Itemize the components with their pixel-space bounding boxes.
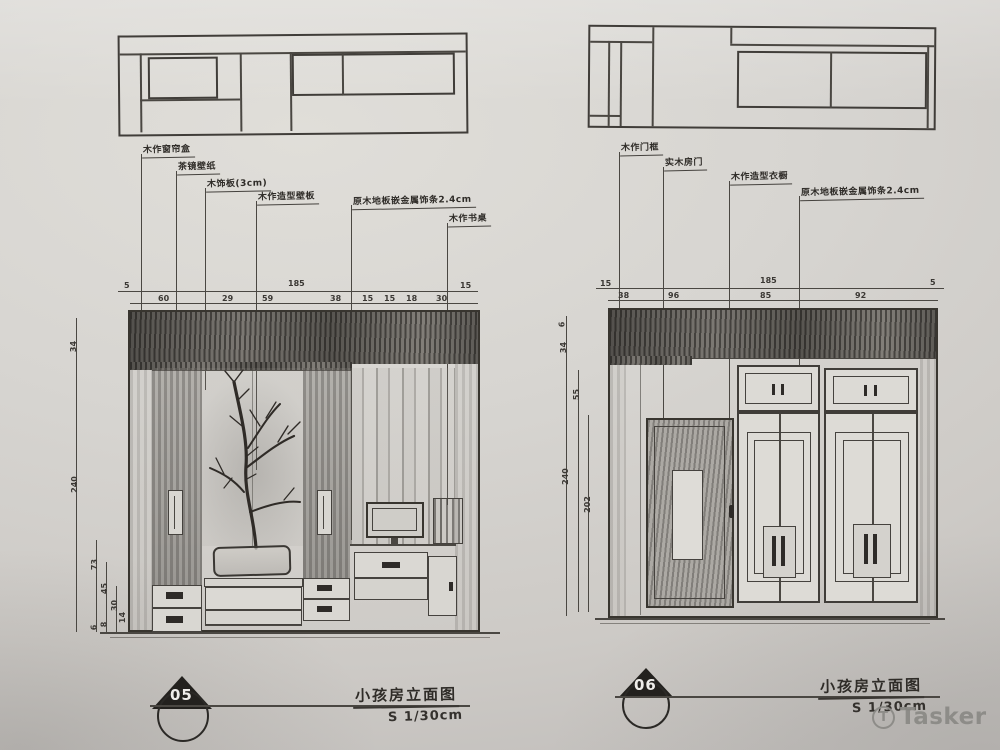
wardrobe-top-cabinet	[824, 368, 918, 412]
dimension-value: 15	[460, 281, 471, 290]
wardrobe-handle	[772, 536, 776, 566]
dimension-value: 34	[69, 341, 78, 352]
dimension-value: 60	[158, 294, 169, 303]
dimension-value: 55	[572, 389, 581, 400]
cabinet-handle	[864, 385, 867, 396]
dimension-line	[130, 303, 478, 304]
pencil-line	[927, 45, 929, 128]
pencil-line	[140, 98, 240, 100]
cabinet-handle	[449, 582, 453, 591]
tasker-watermark: T Tasker	[872, 704, 987, 730]
bed-pillow	[213, 545, 292, 577]
dimension-value: 6	[89, 625, 98, 631]
bed-drawer	[205, 587, 302, 610]
floor-line	[600, 623, 930, 624]
dimension-value: 45	[100, 583, 109, 594]
wardrobe-doors	[737, 412, 820, 603]
wall-seam	[640, 365, 641, 615]
dimension-line	[96, 540, 97, 632]
drawing-scale: S 1/30cm	[388, 708, 464, 726]
pencil-line	[652, 27, 654, 126]
monitor	[366, 502, 424, 538]
handle-plate	[853, 524, 891, 578]
desk-drawer	[354, 578, 428, 600]
hand-drawn-elevation-sketch: 木作窗帘盒 茶镜壁纸 木饰板(3cm) 木作造型壁板 原木地板嵌金属饰条2.4c…	[0, 0, 1000, 750]
wardrobe-handle	[873, 534, 877, 564]
dimension-value: 92	[855, 291, 866, 300]
dimension-value: 6	[557, 322, 566, 328]
drawer-handle	[317, 606, 332, 612]
tasker-logo-letter: T	[879, 710, 888, 725]
dimension-value: 96	[668, 291, 679, 300]
dimension-value: 38	[618, 291, 629, 300]
dimension-line	[588, 415, 589, 612]
plan-cabinet-box	[148, 57, 218, 100]
leader-line	[619, 152, 620, 332]
monitor-screen	[372, 508, 417, 531]
dimension-value: 202	[583, 496, 592, 513]
desk-surface	[350, 544, 456, 546]
dimension-value: 14	[118, 612, 127, 623]
door-handle	[729, 505, 734, 518]
pencil-line	[590, 115, 621, 117]
dimension-value: 34	[559, 342, 568, 353]
leader-line	[141, 154, 142, 332]
floor-line	[110, 637, 490, 638]
plan-cabinet-box	[292, 53, 455, 96]
right-wardrobe-panel	[303, 368, 350, 578]
monitor-stand	[391, 538, 398, 544]
dimension-value: 15	[600, 279, 611, 288]
dimension-value: 30	[110, 600, 119, 611]
left-wardrobe-panel	[152, 368, 202, 585]
dimension-value: 18	[406, 294, 417, 303]
pencil-line	[608, 41, 610, 126]
ceiling-soffit-step	[610, 356, 692, 365]
dimension-value: 29	[222, 294, 233, 303]
bed-drawer	[205, 610, 302, 625]
left-plan-view	[118, 32, 469, 136]
tasker-watermark-text: Tasker	[900, 704, 987, 730]
dimension-value: 38	[330, 294, 341, 303]
callout-label: 木作书桌	[448, 215, 491, 228]
dimension-value: 8	[99, 622, 108, 628]
wardrobe-top-cabinet	[737, 365, 820, 412]
drawer-handle	[317, 585, 332, 591]
dimension-value: 15	[362, 294, 373, 303]
dimension-line	[596, 288, 944, 289]
wardrobe-handle	[864, 534, 868, 564]
pencil-line	[323, 496, 324, 529]
drawing-title: 小孩房立面图	[353, 683, 459, 709]
floor-line	[100, 632, 500, 634]
callout-label: 原木地板嵌金属饰条2.4cm	[352, 196, 476, 210]
pencil-line	[174, 496, 175, 529]
dimension-value: 240	[70, 476, 79, 493]
callout-label: 木作造型衣橱	[730, 172, 792, 185]
pencil-line	[620, 41, 622, 126]
ceiling-soffit	[610, 310, 936, 358]
callout-label: 实木房门	[664, 159, 707, 172]
entry-door	[646, 418, 734, 608]
dimension-value: 73	[90, 559, 99, 570]
cabinet-door-molding	[833, 376, 909, 404]
dimension-value: 85	[760, 291, 771, 300]
dimension-value: 59	[262, 294, 273, 303]
cabinet-handle	[874, 385, 877, 396]
cabinet-handle	[781, 384, 784, 395]
dimension-value: 240	[561, 468, 570, 485]
callout-label: 木作门框	[620, 144, 663, 157]
callout-label: 原木地板嵌金属饰条2.4cm	[800, 187, 924, 201]
dimension-value: 185	[760, 276, 777, 285]
dimension-value: 15	[384, 294, 395, 303]
dimension-value: 5	[124, 281, 130, 290]
handle-plate	[763, 526, 796, 578]
pencil-line	[730, 28, 732, 44]
floor-line	[595, 618, 945, 620]
dimension-line	[578, 370, 579, 612]
callout-label: 木作窗帘盒	[142, 145, 195, 158]
callout-label: 茶镜壁纸	[177, 163, 220, 176]
dimension-line	[608, 300, 938, 301]
drawer-handle	[166, 592, 183, 599]
dimension-value: 30	[436, 294, 447, 303]
wardrobe-handle-recess	[168, 490, 183, 535]
drawer-handle	[382, 562, 400, 568]
drawing-number: 05	[170, 686, 193, 704]
tasker-logo-icon: T	[872, 706, 895, 729]
wardrobe-handle	[781, 536, 785, 566]
ceiling-soffit	[130, 312, 478, 364]
wardrobe-doors	[824, 412, 918, 603]
bed-top-rail	[204, 578, 303, 587]
right-plan-view	[588, 25, 937, 130]
dimension-line	[566, 316, 567, 616]
dimension-value: 185	[288, 279, 305, 288]
callout-label: 木作造型壁板	[257, 192, 319, 205]
pencil-line	[140, 53, 142, 132]
dimension-value: 5	[930, 278, 936, 287]
callout-label: 木饰板(3cm)	[206, 179, 271, 192]
door-panel	[672, 470, 703, 560]
plan-wardrobe-box	[737, 51, 927, 109]
pencil-line	[692, 358, 936, 359]
pencil-line	[240, 52, 242, 131]
pencil-line	[730, 44, 934, 47]
wardrobe-handle-recess	[317, 490, 332, 535]
pencil-line	[205, 625, 302, 626]
cabinet-door-molding	[745, 373, 812, 404]
drawing-title: 小孩房立面图	[818, 674, 924, 700]
chair-back	[433, 498, 463, 544]
dimension-line	[118, 291, 478, 292]
drawing-number: 06	[634, 676, 657, 694]
cabinet-handle	[772, 384, 775, 395]
drawer-handle	[166, 616, 183, 623]
tree-mural-drawing	[200, 364, 306, 550]
